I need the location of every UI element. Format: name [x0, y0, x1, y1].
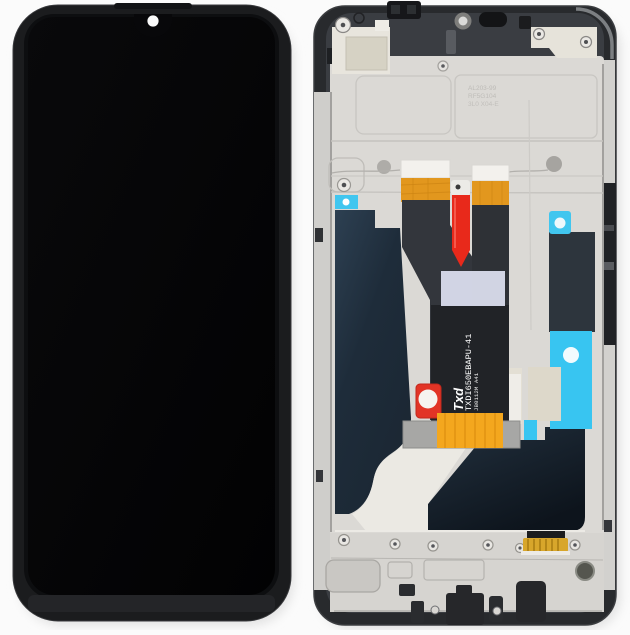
- svg-text:JB0112M A41: JB0112M A41: [473, 372, 480, 411]
- svg-text:AL203-99: AL203-99: [468, 85, 497, 92]
- svg-text:RF5G104: RF5G104: [468, 93, 497, 100]
- svg-text:3L0 X04-E: 3L0 X04-E: [468, 101, 499, 108]
